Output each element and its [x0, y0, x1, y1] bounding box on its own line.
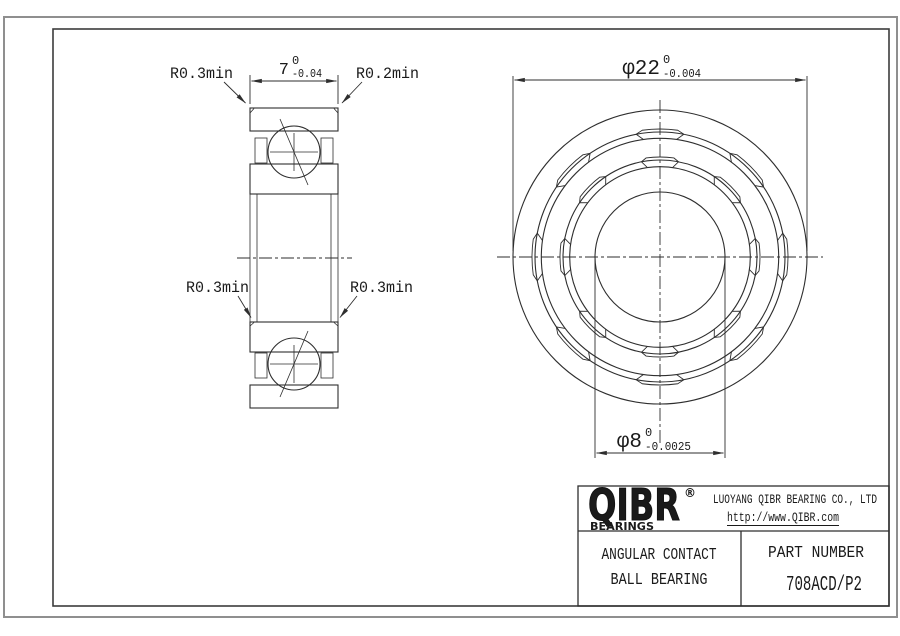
cage-pocket — [580, 311, 606, 337]
dim-bore-lower: -0.0025 — [645, 440, 691, 454]
dimension-width: 7 0 -0.04 — [250, 54, 338, 104]
cage-right-bottom — [321, 353, 333, 378]
label-r-mid-right: R0.3min — [350, 279, 413, 297]
dim-od-lower: -0.004 — [663, 67, 701, 81]
title-block: QIBR ® BEARINGS LUOYANG QIBR BEARING CO.… — [578, 480, 889, 606]
cage-left-bottom — [255, 353, 267, 378]
part-number-value: 708ACD/P2 — [786, 574, 862, 597]
cage-pocket — [556, 153, 590, 187]
logo: QIBR ® BEARINGS — [588, 480, 696, 533]
cage-pocket — [714, 311, 740, 337]
cage-pocket — [730, 153, 764, 187]
section-view: 7 0 -0.04 R0.3min R0.2min R0.3min R0.3mi… — [170, 54, 419, 408]
dim-width-value: 7 — [279, 61, 289, 80]
dim-bore-value: φ8 — [617, 431, 642, 454]
section-top — [250, 108, 338, 194]
cage-left-top — [255, 138, 267, 163]
chamfer-marks-top — [250, 109, 338, 114]
cage-right-top — [321, 138, 333, 163]
section-bottom — [250, 322, 338, 408]
label-r-mid-left: R0.3min — [186, 279, 249, 297]
label-r-top-right: R0.2min — [356, 65, 419, 83]
product-type-line2: BALL BEARING — [611, 571, 708, 590]
label-r-top-left: R0.3min — [170, 65, 233, 83]
front-view: φ22 0 -0.004 φ8 0 -0.0025 — [497, 53, 823, 458]
cage-pocket — [580, 177, 606, 203]
registered-trademark-icon: ® — [684, 486, 696, 500]
dim-od-upper: 0 — [663, 53, 670, 67]
cage-pocket — [556, 327, 590, 361]
chamfer-marks-bottom — [250, 323, 338, 327]
bearing-drawing-canvas: 7 0 -0.04 R0.3min R0.2min R0.3min R0.3mi… — [0, 0, 900, 636]
dim-width-lower: -0.04 — [292, 67, 322, 81]
cage-pocket — [714, 177, 740, 203]
outer-ring-section-bottom — [250, 385, 338, 408]
company-website: http://www.QIBR.com — [727, 510, 839, 525]
dim-od-value: φ22 — [622, 58, 660, 81]
dim-bore-upper: 0 — [645, 426, 652, 440]
logo-tagline: BEARINGS — [590, 520, 654, 533]
part-number-label: PART NUMBER — [768, 544, 864, 563]
radius-labels: R0.3min R0.2min R0.3min R0.3min — [170, 65, 419, 318]
dim-width-upper: 0 — [292, 54, 299, 68]
company-name: LUOYANG QIBR BEARING CO., LTD — [713, 492, 877, 507]
cage-pocket — [730, 327, 764, 361]
drawing-sheet: 7 0 -0.04 R0.3min R0.2min R0.3min R0.3mi… — [0, 0, 900, 636]
outer-ring-section-top — [250, 108, 338, 131]
product-type-line1: ANGULAR CONTACT — [602, 546, 717, 565]
